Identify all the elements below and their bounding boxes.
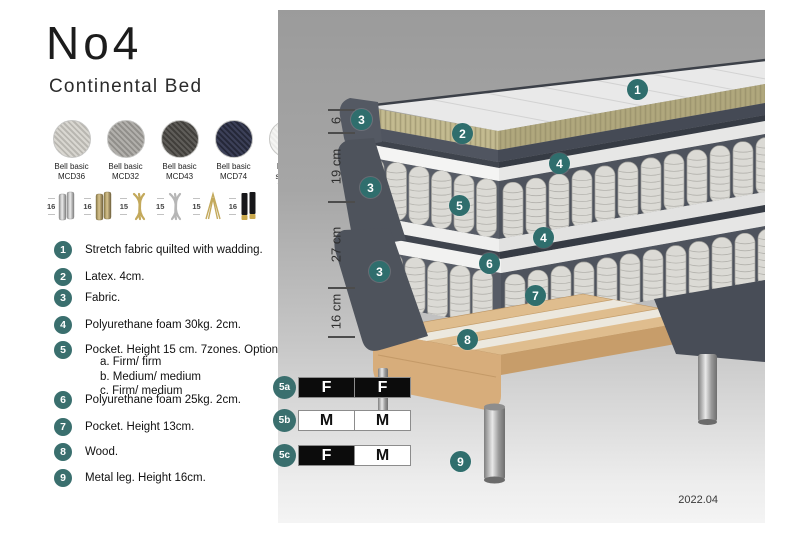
- spec-text: Latex. 4cm.: [85, 271, 144, 283]
- firmness-bar: F M: [298, 445, 411, 466]
- callout-badge-3: 3: [351, 109, 372, 130]
- callout-badge-5: 5: [449, 195, 470, 216]
- ruler-tick: [328, 201, 355, 203]
- firmness-label-badge: 5b: [273, 409, 296, 432]
- firmness-cell: M: [354, 446, 410, 465]
- spec-item-7: 7 Pocket. Height 13cm.: [54, 417, 194, 437]
- list-number-badge: 5: [54, 341, 72, 359]
- spec-text: Polyurethane foam 30kg. 2cm.: [85, 319, 241, 331]
- callout-badge-9: 9: [450, 451, 471, 472]
- firmness-cell: M: [354, 411, 410, 430]
- spec-list: 1 Stretch fabric quilted with wadding. 2…: [0, 0, 278, 533]
- list-number-badge: 8: [54, 443, 72, 461]
- callout-badge-3: 3: [369, 261, 390, 282]
- list-number-badge: 4: [54, 316, 72, 334]
- dimension-label-legs: 16 cm: [329, 282, 344, 342]
- callout-badge-2: 2: [452, 123, 473, 144]
- firmness-cell: F: [299, 446, 354, 465]
- callout-badge-8: 8: [457, 329, 478, 350]
- spec-item-9: 9 Metal leg. Height 16cm.: [54, 468, 206, 488]
- callout-badge-1: 1: [627, 79, 648, 100]
- callout-badge-7: 7: [525, 285, 546, 306]
- list-number-badge: 3: [54, 289, 72, 307]
- firmness-label-badge: 5c: [273, 444, 296, 467]
- firmness-label-badge: 5a: [273, 376, 296, 399]
- callout-badge-4: 4: [549, 153, 570, 174]
- list-number-badge: 6: [54, 391, 72, 409]
- firmness-cell: M: [299, 411, 354, 430]
- firmness-cell: F: [299, 378, 354, 397]
- diagram-panel: 6 19 cm 27 cm 16 cm 1 2 3 3 3 4 4 5 6 7 …: [278, 10, 765, 523]
- option-b: b. Medium/ medium: [100, 370, 201, 385]
- spec-item-2: 2 Latex. 4cm.: [54, 267, 144, 287]
- firmness-bar: F F: [298, 377, 411, 398]
- option-a: a. Firm/ firm: [100, 355, 201, 370]
- product-info-panel: No4 Continental Bed Bell basic MCD36 Bel…: [0, 0, 278, 533]
- list-number-badge: 1: [54, 241, 72, 259]
- spec-text: Metal leg. Height 16cm.: [85, 472, 206, 484]
- spec-text: Pocket. Height 13cm.: [85, 421, 194, 433]
- firmness-cell: F: [354, 378, 410, 397]
- firmness-option-5a: 5a F F: [273, 376, 411, 399]
- dimension-label-base: 27 cm: [329, 215, 344, 275]
- firmness-bar: M M: [298, 410, 411, 431]
- callout-badge-6: 6: [479, 253, 500, 274]
- spec-text: Stretch fabric quilted with wadding.: [85, 244, 263, 256]
- spec-item-3: 3 Fabric.: [54, 288, 120, 308]
- spec-text: Polyurethane foam 25kg. 2cm.: [85, 394, 241, 406]
- spec-text: Wood.: [85, 446, 118, 458]
- version-stamp: 2022.04: [618, 494, 718, 506]
- callout-badge-4: 4: [533, 227, 554, 248]
- spec-item-8: 8 Wood.: [54, 442, 118, 462]
- spec-item-6: 6 Polyurethane foam 25kg. 2cm.: [54, 390, 241, 410]
- spec-item-1: 1 Stretch fabric quilted with wadding.: [54, 240, 263, 260]
- list-number-badge: 9: [54, 469, 72, 487]
- callout-badge-3: 3: [360, 177, 381, 198]
- firmness-option-5c: 5c F M: [273, 444, 411, 467]
- list-number-badge: 2: [54, 268, 72, 286]
- product-sheet: No4 Continental Bed Bell basic MCD36 Bel…: [0, 0, 800, 533]
- list-number-badge: 7: [54, 418, 72, 436]
- spec-text: Fabric.: [85, 292, 120, 304]
- firmness-option-5b: 5b M M: [273, 409, 411, 432]
- spec-item-4: 4 Polyurethane foam 30kg. 2cm.: [54, 315, 241, 335]
- dimension-label-mattress: 19 cm: [329, 137, 344, 197]
